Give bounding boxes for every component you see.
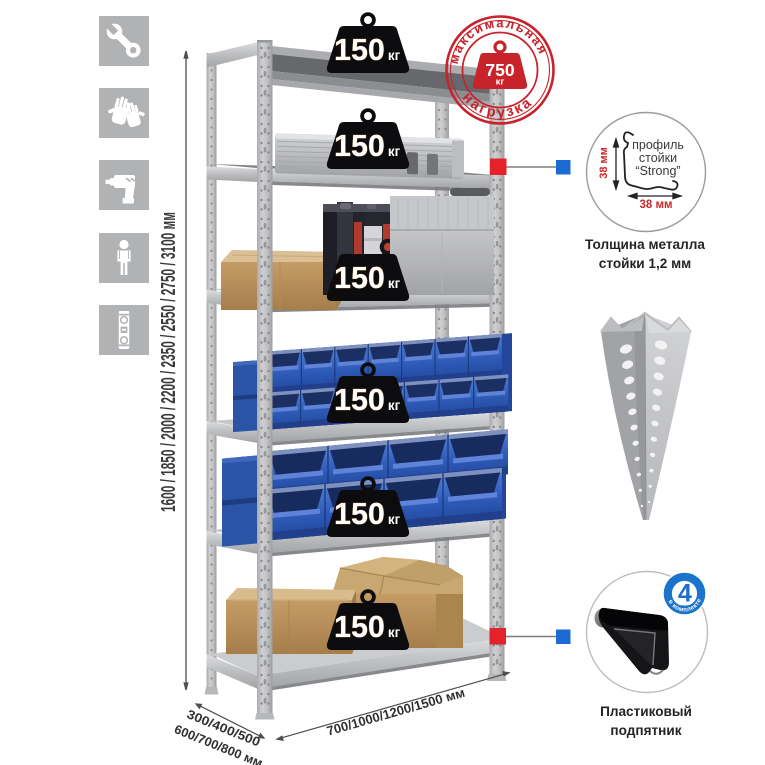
svg-text:38 мм: 38 мм xyxy=(639,199,672,211)
svg-text:кг: кг xyxy=(496,77,505,88)
svg-text:“Strong”: “Strong” xyxy=(635,164,680,178)
svg-text:стойки: стойки xyxy=(639,151,677,165)
svg-text:подпятник: подпятник xyxy=(610,723,681,738)
svg-text:38 мм: 38 мм xyxy=(598,147,610,179)
svg-text:1600 / 1850 / 2000 / 2200 / 23: 1600 / 1850 / 2000 / 2200 / 2350 / 2550 … xyxy=(158,212,180,512)
svg-text:Пластиковый: Пластиковый xyxy=(600,704,692,719)
svg-text:Толщина металла: Толщина металла xyxy=(585,237,705,252)
svg-text:стойки 1,2 мм: стойки 1,2 мм xyxy=(599,256,691,271)
svg-text:профиль: профиль xyxy=(632,138,684,152)
